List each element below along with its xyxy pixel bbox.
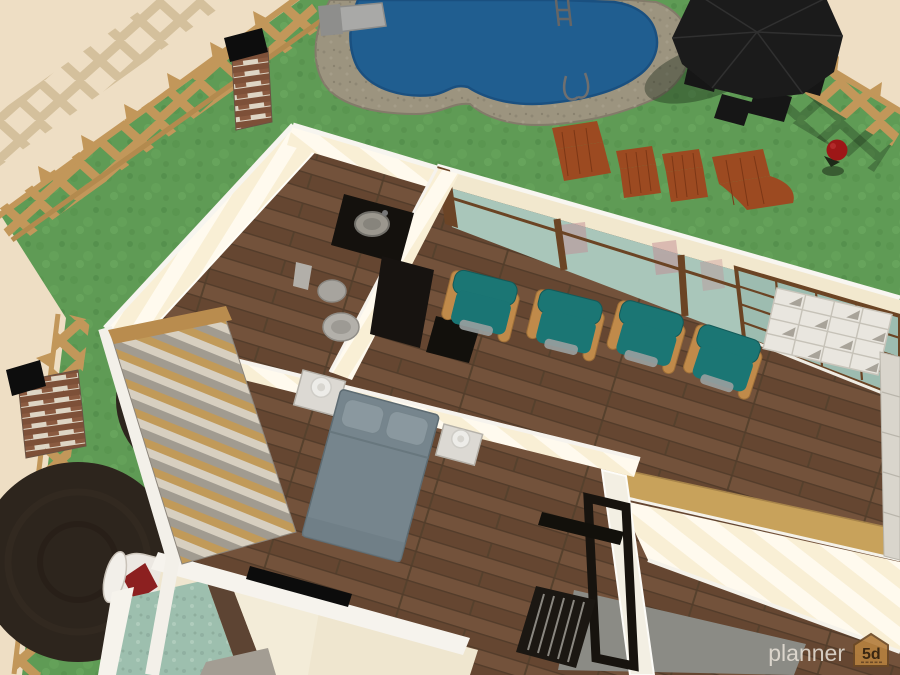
flower-highlight xyxy=(830,143,836,149)
flower-shadow xyxy=(822,166,844,176)
faucet xyxy=(382,210,388,216)
planner5d-render-viewport: planner 5d xyxy=(0,0,900,675)
edge-shelf xyxy=(880,352,900,560)
sink-bowl xyxy=(363,218,381,230)
pool-water xyxy=(350,0,657,104)
toilet-seat xyxy=(331,320,351,334)
diving-board-base xyxy=(318,4,343,36)
floorplan-scene: planner 5d xyxy=(0,0,900,675)
toilet-tank xyxy=(318,280,346,302)
watermark-brand-text: planner xyxy=(768,640,845,666)
watermark-logo-text: 5d xyxy=(862,646,881,663)
swimming-pool-area xyxy=(316,0,691,125)
flower-bloom xyxy=(827,140,848,161)
